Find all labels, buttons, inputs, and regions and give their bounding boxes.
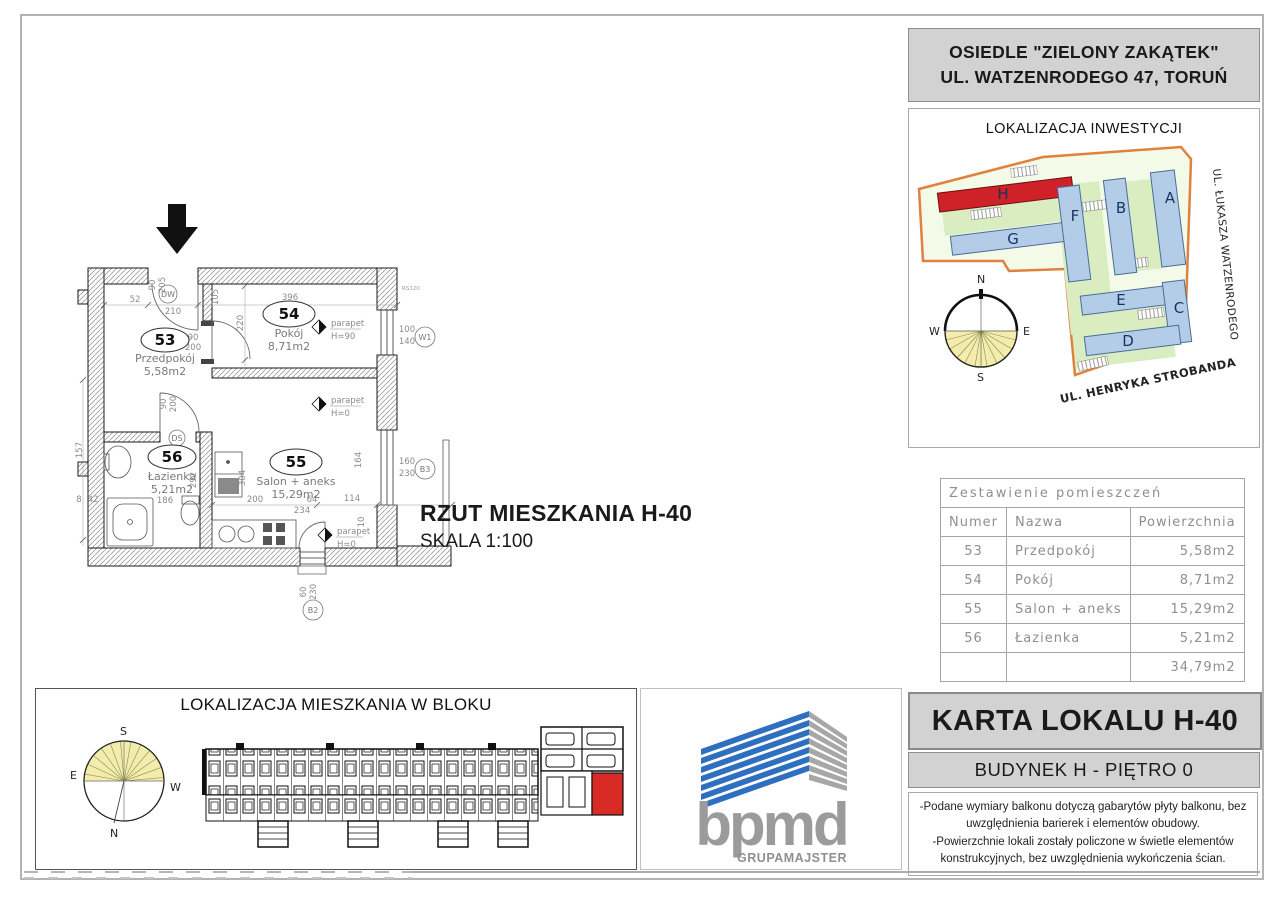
- svg-text:H=0: H=0: [331, 409, 350, 419]
- strip-right-section: [541, 727, 623, 815]
- svg-text:F: F: [1071, 207, 1080, 225]
- svg-text:53: 53: [155, 331, 176, 349]
- svg-text:DW: DW: [161, 290, 175, 299]
- svg-text:parapet: parapet: [331, 396, 365, 406]
- table-header-row: Numer Nazwa Powierzchnia: [941, 508, 1245, 537]
- estate-name: OSIEDLE "ZIELONY ZAKĄTEK": [909, 42, 1259, 63]
- svg-text:55: 55: [286, 453, 307, 471]
- svg-text:160: 160: [399, 457, 415, 467]
- svg-text:5,21m2: 5,21m2: [151, 483, 193, 496]
- svg-text:H=90: H=90: [331, 332, 355, 342]
- total-area: 34,79m2: [1130, 653, 1244, 682]
- unit-card-title: KARTA LOKALU H-40: [908, 692, 1262, 750]
- plan-scale: SKALA 1:100: [420, 531, 692, 553]
- svg-text:105: 105: [211, 289, 221, 305]
- col-numer: Numer: [941, 508, 1007, 537]
- svg-text:60: 60: [299, 587, 309, 598]
- table-row: 53 Przedpokój 5,58m2: [941, 537, 1245, 566]
- svg-text:Łazienka: Łazienka: [147, 470, 196, 483]
- watermark-dashes: [24, 877, 412, 879]
- table-row: 54 Pokój 8,71m2: [941, 566, 1245, 595]
- parapet-annotations: parapet H=90 parapet H=0 parapet H=0: [312, 319, 371, 550]
- col-nazwa: Nazwa: [1006, 508, 1130, 537]
- room-area: 5,21m2: [1130, 624, 1244, 653]
- svg-text:164: 164: [354, 452, 364, 468]
- bpmd-logo: bpmd GRUPAMAJSTER: [641, 689, 901, 869]
- svg-text:90: 90: [159, 399, 169, 410]
- floor-plan-drawing: 52 210 105 220 396 90 200 90 205 100 140…: [55, 190, 475, 650]
- svg-text:140: 140: [399, 337, 415, 347]
- svg-text:C: C: [1174, 299, 1184, 317]
- dimension-lines: [80, 283, 455, 546]
- site-map: H G F B A E C D N S W E UL. ŁUKASZA WATZ…: [913, 141, 1253, 441]
- stair-towers: [258, 821, 528, 847]
- plan-title: RZUT MIESZKANIA H-40: [420, 500, 692, 527]
- room-number: 53: [941, 537, 1007, 566]
- notes-panel: -Podane wymiary balkonu dotyczą gabarytó…: [908, 792, 1258, 876]
- svg-text:S: S: [120, 725, 127, 738]
- svg-text:Przedpokój: Przedpokój: [135, 352, 195, 365]
- svg-text:5,58m2: 5,58m2: [144, 365, 186, 378]
- room-name: Pokój: [1006, 566, 1130, 595]
- note-areas: -Powierzchnie lokali zostały policzone w…: [917, 834, 1249, 869]
- company-logo-panel: bpmd GRUPAMAJSTER: [640, 688, 902, 870]
- svg-text:E: E: [70, 769, 77, 782]
- svg-text:42: 42: [88, 495, 99, 505]
- svg-text:H: H: [997, 185, 1008, 203]
- svg-text:230: 230: [399, 469, 415, 479]
- entrance-arrow-icon: [156, 204, 198, 254]
- room-number: 55: [941, 595, 1007, 624]
- svg-text:Pokój: Pokój: [275, 327, 304, 340]
- svg-text:N: N: [110, 827, 118, 840]
- rooms-table-title: Zestawienie pomieszczeń: [941, 479, 1245, 508]
- svg-text:E: E: [1116, 291, 1125, 309]
- svg-text:parapet: parapet: [331, 319, 365, 329]
- svg-text:A: A: [1165, 189, 1176, 207]
- svg-text:304: 304: [238, 470, 248, 486]
- svg-text:W: W: [929, 325, 940, 338]
- room-name: Salon + aneks: [1006, 595, 1130, 624]
- room-area: 8,71m2: [1130, 566, 1244, 595]
- svg-text:Salon + aneks: Salon + aneks: [256, 475, 336, 488]
- plan-title-block: RZUT MIESZKANIA H-40 SKALA 1:100: [420, 500, 692, 553]
- door-b2: [298, 548, 326, 574]
- svg-text:100: 100: [399, 325, 415, 335]
- svg-text:parapet: parapet: [337, 527, 371, 537]
- room-number: 56: [941, 624, 1007, 653]
- svg-text:90: 90: [148, 280, 158, 291]
- watermark-dashes: [24, 871, 412, 873]
- svg-text:B2: B2: [308, 606, 319, 615]
- svg-text:15,29m2: 15,29m2: [271, 488, 320, 501]
- svg-text:G: G: [1007, 230, 1019, 248]
- table-row: 56 Łazienka 5,21m2: [941, 624, 1245, 653]
- block-plan: S E W N: [36, 689, 634, 867]
- building-strip: [202, 727, 623, 847]
- balcony-door-b3: [377, 430, 397, 505]
- svg-text:E: E: [1023, 325, 1030, 338]
- block-location-panel: LOKALIZACJA MIESZKANIA W BLOKU: [35, 688, 637, 870]
- svg-text:210: 210: [165, 307, 181, 317]
- svg-text:230: 230: [309, 584, 319, 600]
- svg-text:200: 200: [169, 396, 179, 412]
- investment-location-panel: LOKALIZACJA INWESTYCJI: [908, 108, 1260, 448]
- room-name: Przedpokój: [1006, 537, 1130, 566]
- svg-text:S: S: [977, 371, 984, 384]
- street-right-label: UL. ŁUKASZA WATZENRODEGO: [1210, 168, 1240, 341]
- room-area: 15,29m2: [1130, 595, 1244, 624]
- estate-header: OSIEDLE "ZIELONY ZAKĄTEK" UL. WATZENRODE…: [908, 28, 1260, 102]
- highlighted-unit: [592, 773, 623, 815]
- table-total-row: 34,79m2: [941, 653, 1245, 682]
- col-powierzchnia: Powierzchnia: [1130, 508, 1244, 537]
- svg-text:186: 186: [157, 496, 173, 506]
- svg-text:114: 114: [344, 494, 360, 504]
- investment-location-title: LOKALIZACJA INWESTYCJI: [909, 121, 1259, 137]
- block-compass: S E W N: [70, 725, 181, 840]
- site-compass: N S W E: [929, 273, 1030, 384]
- svg-text:10: 10: [357, 517, 367, 528]
- room-number: 54: [941, 566, 1007, 595]
- table-row: 55 Salon + aneks 15,29m2: [941, 595, 1245, 624]
- svg-text:54: 54: [279, 305, 300, 323]
- svg-text:220: 220: [236, 315, 246, 331]
- svg-text:W: W: [170, 781, 181, 794]
- svg-text:N: N: [977, 273, 985, 286]
- room-name: Łazienka: [1006, 624, 1130, 653]
- svg-text:234: 234: [294, 506, 310, 516]
- svg-text:52: 52: [130, 295, 141, 305]
- building-floor-label: BUDYNEK H - PIĘTRO 0: [908, 752, 1260, 788]
- svg-text:8: 8: [76, 495, 81, 505]
- svg-text:B3: B3: [420, 465, 431, 474]
- svg-text:DS: DS: [171, 434, 182, 443]
- frame-bottom-line: [412, 871, 1260, 873]
- svg-text:200: 200: [247, 495, 263, 505]
- room-area: 5,58m2: [1130, 537, 1244, 566]
- svg-text:D: D: [1122, 332, 1134, 350]
- svg-text:W1: W1: [419, 333, 432, 342]
- window-w1: [377, 310, 397, 355]
- estate-address: UL. WATZENRODEGO 47, TORUŃ: [909, 67, 1259, 88]
- svg-text:8,71m2: 8,71m2: [268, 340, 310, 353]
- svg-text:RS120: RS120: [402, 286, 420, 292]
- note-balcony: -Podane wymiary balkonu dotyczą gabarytó…: [917, 799, 1249, 834]
- logo-subtitle: GRUPAMAJSTER: [737, 851, 847, 865]
- svg-text:157: 157: [75, 442, 85, 458]
- logo-name: bpmd: [695, 791, 846, 858]
- svg-text:H=0: H=0: [337, 540, 356, 550]
- svg-text:B: B: [1116, 199, 1126, 217]
- rooms-table: Zestawienie pomieszczeń Numer Nazwa Powi…: [940, 478, 1245, 682]
- svg-text:56: 56: [162, 448, 183, 466]
